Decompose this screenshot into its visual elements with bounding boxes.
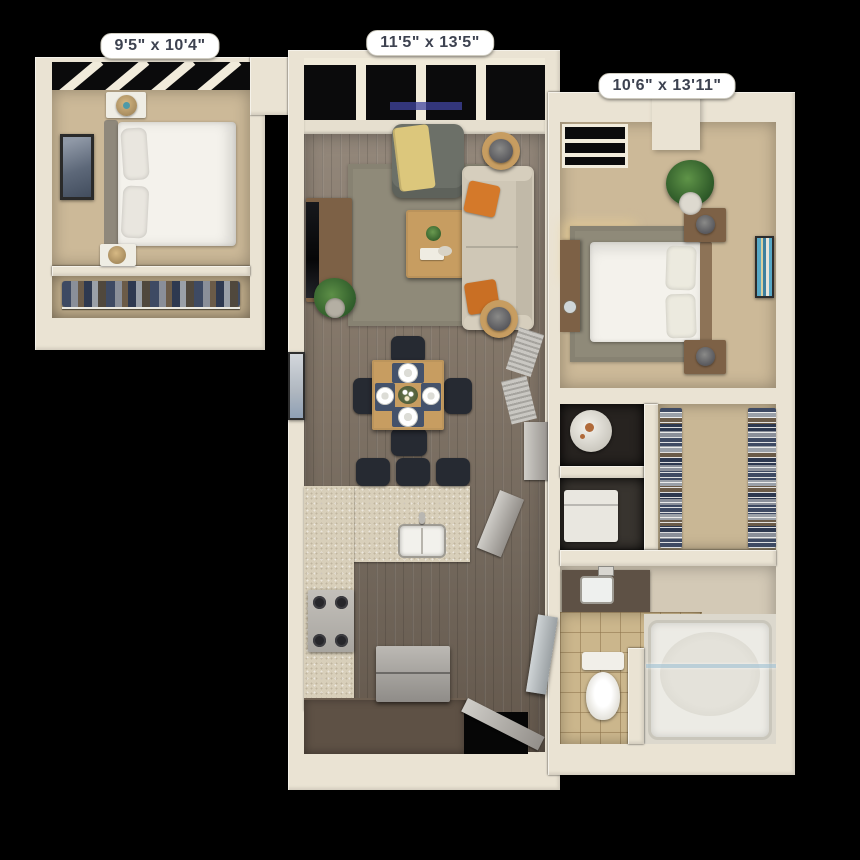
window-reflection (390, 102, 462, 110)
bedroom1-pillow (120, 127, 150, 181)
window-mullion-icon (356, 58, 366, 120)
bathroom-sink (580, 576, 614, 604)
bedroom2-dresser (560, 240, 580, 332)
bedroom1-lamp (116, 95, 137, 116)
bedroom1-pillow (121, 185, 150, 238)
closet-bathroom-wall (560, 550, 776, 566)
dining-wall-art (288, 352, 305, 420)
window-beam-icon (150, 62, 196, 90)
bar-stool (356, 458, 390, 486)
dinner-plate (398, 407, 418, 427)
stove-burner-icon (335, 596, 348, 609)
bedroom1-wall-art (60, 134, 94, 200)
closet-rack-clothes (748, 408, 776, 548)
bedroom1-window-band (52, 62, 250, 90)
window-mullion-icon (476, 58, 486, 120)
sofa-back-cushion (516, 170, 532, 326)
dinner-plate (422, 387, 440, 405)
bedroom2-wall-art (755, 236, 774, 298)
bedroom2-lamp (696, 215, 715, 234)
dresser-mirror (563, 300, 577, 314)
water-heater (570, 410, 612, 452)
bar-stool (396, 458, 430, 486)
bedroom1-closet-clothes (62, 281, 240, 307)
window-beam-icon (104, 62, 150, 90)
coffee-table-plant (426, 226, 441, 241)
tv-screen (306, 202, 319, 298)
floorplan-canvas: 9'5" x 10'4" 11'5" x 13'5" 10'6" x 13'11… (0, 0, 860, 860)
dimension-label-bedroom2: 10'6" x 13'11" (599, 73, 736, 99)
dining-chair (391, 428, 427, 456)
window-mullion-icon (416, 58, 426, 120)
toilet (586, 672, 620, 720)
stove-burner-icon (335, 634, 348, 647)
bedroom1-closet-rod (62, 307, 240, 309)
accent-pillow (463, 180, 501, 218)
bathtub-basin (660, 632, 760, 716)
coffee-table-bowl (438, 246, 452, 256)
bedroom2-bed-headboard (700, 242, 712, 342)
toilet-tank (582, 652, 624, 670)
window-beam-icon (196, 62, 242, 90)
utility-door (524, 422, 550, 480)
dinner-plate (398, 363, 418, 383)
side-table-lamp (487, 307, 511, 331)
window-beam-icon (58, 62, 104, 90)
stove-burner-icon (313, 596, 326, 609)
dimension-label-living-room: 11'5" x 13'5" (366, 30, 494, 56)
throw-blanket (392, 124, 436, 192)
bedroom1-lamp (108, 246, 126, 264)
utility-closet-wall (644, 404, 658, 550)
bedroom1-bed-headboard (104, 120, 118, 248)
light-switch (598, 566, 614, 576)
coffee-table (406, 210, 464, 278)
bedroom2-window (562, 124, 628, 168)
bathroom-partition-wall (628, 648, 644, 744)
dining-chair (444, 378, 472, 414)
dimension-label-bedroom1: 9'5" x 10'4" (100, 33, 219, 59)
bedroom1-closet-wall (52, 266, 250, 276)
flower-centerpiece (398, 386, 418, 404)
dinner-plate (376, 387, 394, 405)
bedroom2-lamp (696, 347, 715, 366)
washer (564, 490, 618, 542)
bedroom2-pillow (665, 245, 697, 290)
utility-divider-wall (560, 466, 644, 478)
bedroom2-pillow (665, 293, 697, 338)
bedroom2-wall-column (652, 92, 700, 150)
stove-burner-icon (313, 634, 326, 647)
side-table-lamp (489, 139, 513, 163)
kitchen-cabinets (304, 698, 466, 754)
sofa-cushion-seam (466, 246, 518, 248)
kitchen-faucet (419, 512, 425, 524)
kitchen-sink (398, 524, 446, 558)
closet-rack-clothes (660, 408, 682, 548)
shower-glass-panel (646, 664, 776, 668)
living-plant-pot (325, 298, 345, 318)
refrigerator (376, 646, 450, 702)
bedroom2-plant-pot (679, 192, 702, 215)
bar-stool (436, 458, 470, 486)
